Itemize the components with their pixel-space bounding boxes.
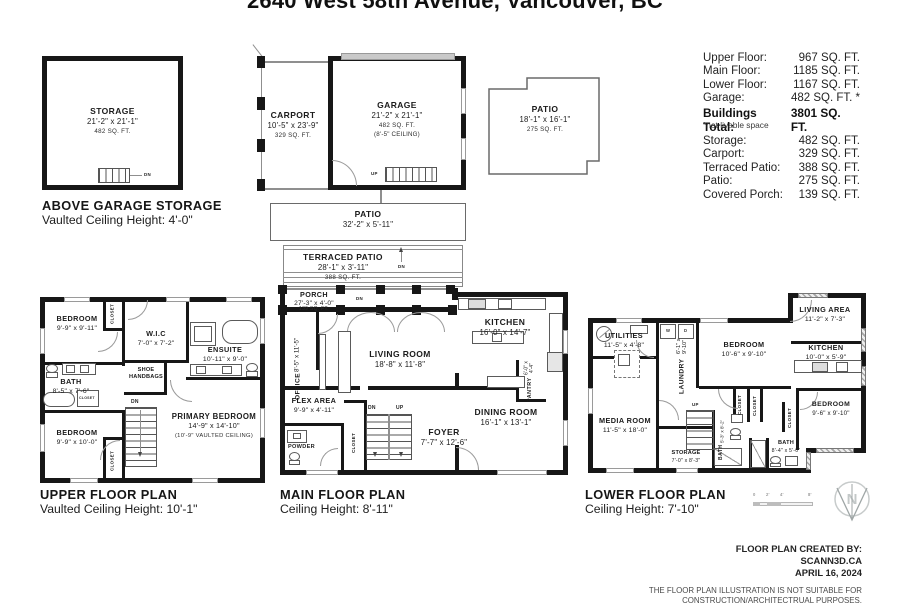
room-powder: POWDER xyxy=(288,444,315,450)
post xyxy=(448,305,457,315)
stairs-glyph xyxy=(125,407,157,467)
window-hatch xyxy=(806,452,811,470)
window xyxy=(676,468,698,473)
door-arc xyxy=(98,332,118,352)
porch-dn-label: DN xyxy=(356,296,363,301)
stair-dn-label: DN xyxy=(368,405,376,411)
room-kitchen: KITCHEN 16'-0" x 14'-7" xyxy=(452,317,558,337)
room-storage-lower: STORAGE 7'-0" x 8'-3" xyxy=(660,450,712,464)
room-shoe-handbags: SHOE HANDBAGS xyxy=(124,367,168,380)
door-arc xyxy=(170,380,192,402)
room-foyer: FOYER 7'-7" x 12'-6" xyxy=(408,427,480,447)
window xyxy=(226,297,252,302)
summary-row: Main Floor:1185 SQ. FT. xyxy=(703,65,860,78)
wall-segment xyxy=(341,423,344,473)
fixture xyxy=(289,460,300,465)
room-living-room: LIVING ROOM 18'-8" x 11'-8" xyxy=(338,349,462,369)
room-bedroom-1: BEDROOM 9'-9" x 9'-11" xyxy=(44,315,110,333)
floor-plan-page: 2640 West 58th Avenue, Vancouver, BC Upp… xyxy=(0,0,910,606)
compass-north-icon: N xyxy=(828,478,876,524)
wall-segment xyxy=(186,377,265,380)
wall-segment xyxy=(280,288,285,475)
room-ensuite: ENSUITE 10'-11" x 9'-0" xyxy=(188,346,262,364)
room-terraced-patio: TERRACED PATIO 28'-1" x 3'-11" 388 SQ. F… xyxy=(287,252,399,282)
door-arc xyxy=(318,314,338,334)
fixture xyxy=(618,354,630,366)
line-segment xyxy=(380,190,382,204)
post xyxy=(376,285,385,294)
summary-row: Carport:329 SQ. FT. xyxy=(703,148,860,161)
stair-dn-label: DN xyxy=(144,172,151,177)
line-segment xyxy=(140,410,141,452)
bathtub xyxy=(222,320,258,344)
wall-segment xyxy=(368,386,458,390)
door-arc xyxy=(659,400,679,420)
line-segment xyxy=(262,188,328,190)
room-kitchen-lower: KITCHEN 10'-0" x 5'-9" xyxy=(790,344,862,362)
summary-row: Storage:482 SQ. FT. xyxy=(703,135,860,148)
room-bath: BATH 8'-5" x 7'-6" xyxy=(42,378,100,396)
room-primary-bedroom: PRIMARY BEDROOM 14'-9" x 14'-10" (10'-9"… xyxy=(166,412,262,440)
stairs-glyph xyxy=(385,167,437,182)
stair-dn-label: DN xyxy=(131,399,139,405)
room-pantry: PANTRY 6'-0" x 4'-4" xyxy=(520,360,540,402)
wall-segment xyxy=(344,400,366,403)
wall-segment xyxy=(124,392,167,395)
window xyxy=(64,297,90,302)
window-hatch xyxy=(816,448,854,453)
line-segment xyxy=(388,414,390,460)
window-hatch xyxy=(798,293,828,298)
scale-bar: 0 2' 4' 8' xyxy=(753,492,815,510)
fixture xyxy=(319,334,326,390)
summary-row: Patio:275 SQ. FT. xyxy=(703,175,860,188)
door-arc xyxy=(371,312,395,332)
fixture xyxy=(812,362,828,372)
fixture xyxy=(730,435,741,440)
window xyxy=(497,470,547,475)
main-floor-subcaption: Ceiling Height: 8'-11" xyxy=(280,502,393,516)
wall-segment xyxy=(40,410,125,413)
stair-arrow-up xyxy=(399,247,403,252)
stairs-glyph xyxy=(98,168,130,183)
room-closet: CLOSET xyxy=(784,404,797,432)
room-garage: GARAGE 21'-2" x 21'-1" 482 SQ. FT. (8'-5… xyxy=(338,100,456,138)
window xyxy=(306,470,338,475)
line-segment xyxy=(252,44,262,56)
room-patio: PATIO 18'-1" x 16'-1" 275 SQ. FT. xyxy=(495,104,595,134)
area-summary-extras: Storage:482 SQ. FT. Carport:329 SQ. FT. … xyxy=(703,135,860,202)
window xyxy=(192,478,218,483)
room-bath-1: BATH 5'-3" x 8'-2" xyxy=(714,420,730,460)
summary-row: Terraced Patio:388 SQ. FT. xyxy=(703,162,860,175)
window xyxy=(563,330,568,354)
fixture xyxy=(547,352,563,372)
lower-floor-subcaption: Ceiling Height: 7'-10" xyxy=(585,502,699,516)
storage-plan-caption: ABOVE GARAGE STORAGE xyxy=(42,198,222,213)
window xyxy=(70,478,98,483)
line-segment xyxy=(262,61,328,63)
wall-segment xyxy=(285,423,344,426)
fixture xyxy=(836,362,848,372)
window xyxy=(166,297,190,302)
window xyxy=(563,420,568,446)
window xyxy=(616,318,642,323)
wall-segment xyxy=(455,292,567,297)
door-arc xyxy=(128,300,148,320)
post xyxy=(257,179,265,191)
arrow-down-icon xyxy=(399,452,403,457)
door-arc xyxy=(347,312,371,332)
summary-row: Lower Floor:1167 SQ. FT. xyxy=(703,79,860,92)
storage-plan-subcaption: Vaulted Ceiling Height: 4'-0" xyxy=(42,213,193,227)
area-summary: Upper Floor:967 SQ. FT. Main Floor:1185 … xyxy=(703,52,860,130)
room-bedroom-2: BEDROOM 9'-6" x 9'-10" xyxy=(800,401,862,417)
summary-row: Garage:482 SQ. FT. * xyxy=(703,92,860,105)
room-storage: STORAGE 21'-2" x 21'-1" 482 SQ. FT. xyxy=(52,106,173,136)
door-arc xyxy=(320,448,338,466)
stair-up-label: UP xyxy=(396,405,404,411)
fixture xyxy=(222,366,232,374)
fixture xyxy=(293,433,301,439)
room-laundry: LAUNDRY 6'-1" x 9'-10" xyxy=(670,336,694,394)
door-arc xyxy=(421,312,445,332)
fixture xyxy=(785,456,798,466)
wall-segment xyxy=(796,388,863,391)
room-closet: CLOSET xyxy=(347,420,362,466)
summary-total-row: Buildings Total:3801 SQ. FT. xyxy=(703,106,860,119)
window xyxy=(260,318,265,344)
room-closet: CLOSET xyxy=(749,392,762,420)
room-patio-strip: PATIO 32'-2" x 5'-11" xyxy=(290,209,446,229)
upper-floor-subcaption: Vaulted Ceiling Height: 10'-1" xyxy=(40,502,198,516)
fixture xyxy=(80,365,89,373)
upper-floor-caption: UPPER FLOOR PLAN xyxy=(40,487,177,502)
summary-row: Upper Floor:967 SQ. FT. xyxy=(703,52,860,65)
shower xyxy=(750,440,766,468)
arrow-down-icon xyxy=(373,452,377,457)
line-segment xyxy=(283,282,463,283)
room-carport: CARPORT 10'-5" x 23'-9" 329 SQ. FT. xyxy=(258,110,328,140)
post xyxy=(257,97,265,110)
kitchen-counter xyxy=(794,360,862,373)
room-wic: W.I.C 7'-0" x 7'-2" xyxy=(126,330,186,348)
fixture xyxy=(66,365,75,373)
credits: FLOOR PLAN CREATED BY: SCANN3D.CA APRIL … xyxy=(736,543,862,579)
stairs-glyph xyxy=(686,410,714,450)
wall-segment xyxy=(699,386,791,389)
window xyxy=(606,468,634,473)
wall-segment xyxy=(656,318,659,468)
summary-row: Covered Porch:139 SQ. FT. xyxy=(703,189,860,202)
room-bedroom-2: BEDROOM 9'-9" x 10'-0" xyxy=(44,429,110,447)
room-media-room: MEDIA ROOM 11'-5" x 18'-0" xyxy=(590,417,660,435)
post xyxy=(446,285,455,294)
room-dining-room: DINING ROOM 16'-1" x 13'-1" xyxy=(450,407,562,427)
room-closet: CLOSET xyxy=(105,443,121,479)
main-floor-caption: MAIN FLOOR PLAN xyxy=(280,487,405,502)
stair-up-label: UP xyxy=(692,402,699,407)
window xyxy=(588,388,593,414)
disclaimer: THE FLOOR PLAN ILLUSTRATION IS NOT SUITA… xyxy=(649,586,862,605)
fixture xyxy=(194,326,212,342)
fixture xyxy=(196,366,206,374)
fixture xyxy=(498,299,512,309)
lower-floor-caption: LOWER FLOOR PLAN xyxy=(585,487,726,502)
room-flex-area: FLEX AREA 9'-9" x 4'-11" xyxy=(286,397,342,415)
room-living-area: LIVING AREA 11'-2" x 7'-3" xyxy=(788,306,862,324)
garage-door xyxy=(341,53,455,60)
wall-segment xyxy=(122,297,125,366)
stair-arrow xyxy=(130,175,142,176)
post xyxy=(412,285,421,294)
room-porch: PORCH 27'-3" x 4'-0" 139 SQ. FT. xyxy=(284,291,344,313)
door-arc xyxy=(397,312,421,332)
window xyxy=(461,138,466,160)
post xyxy=(257,139,265,152)
post xyxy=(257,56,265,68)
window xyxy=(461,88,466,114)
line-segment xyxy=(283,249,463,250)
room-utilities: UTILITIES 11'-5" x 4'-8" xyxy=(592,332,656,350)
fixture xyxy=(246,371,258,377)
summary-footnote: *not livable space xyxy=(703,120,860,130)
stair-dn-label: DN xyxy=(398,264,405,269)
arrow-down-icon xyxy=(138,452,142,457)
room-bath-2: BATH 8'-4" x 5'-0" xyxy=(766,440,806,454)
room-bedroom-1: BEDROOM 10'-6" x 9'-10" xyxy=(698,341,790,359)
fixture xyxy=(468,299,486,309)
page-title: 2640 West 58th Avenue, Vancouver, BC xyxy=(0,0,910,14)
room-closet: CLOSET xyxy=(105,300,121,328)
front-door-arc xyxy=(456,447,479,470)
room-closet: CLOSET xyxy=(734,390,747,420)
fixture xyxy=(770,463,781,467)
wall-segment xyxy=(124,360,188,363)
window xyxy=(700,318,728,323)
stair-up-label: UP xyxy=(371,171,378,176)
